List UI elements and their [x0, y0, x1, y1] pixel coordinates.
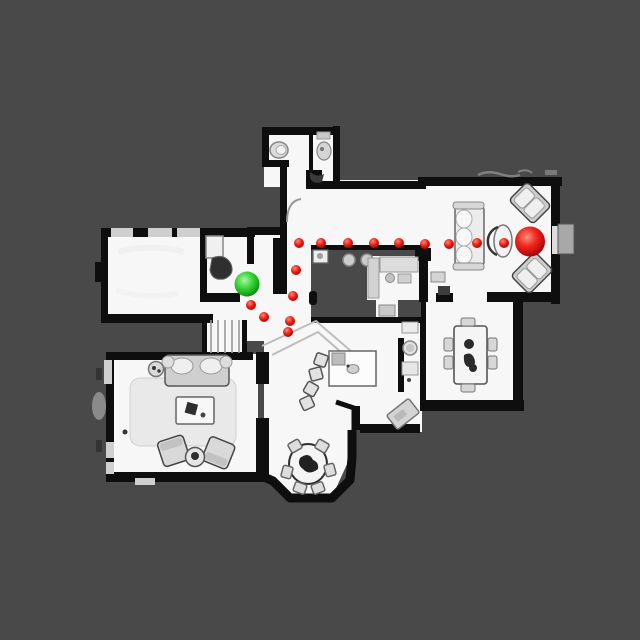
wall-nook-bottom: [360, 424, 420, 433]
floorplan-canvas[interactable]: [0, 0, 640, 640]
path-waypoint: [499, 238, 509, 248]
family-side-table: [186, 448, 205, 467]
exterior-bump: [96, 368, 102, 380]
path-waypoint: [246, 300, 256, 310]
path-waypoint: [343, 238, 353, 248]
wall-closet-bottom: [200, 293, 240, 302]
door-bump-living-right: [558, 224, 574, 254]
wall-leftroom-left: [101, 228, 108, 322]
wall-foyer-divider: [309, 131, 313, 171]
wall-dining-right: [513, 296, 523, 406]
path-waypoint: [288, 291, 298, 301]
path-waypoint: [444, 239, 454, 249]
wall-nook-dining-div: [420, 318, 426, 406]
path-waypoint: [283, 327, 293, 337]
hall-chair-dark: [438, 286, 450, 295]
door-gap-living-right: [552, 226, 558, 254]
wall-island-right: [421, 245, 426, 323]
wall-corridor-top: [247, 227, 281, 235]
wall-outlet: [123, 430, 128, 435]
living-sofa: [453, 202, 484, 270]
wall-living-top: [418, 177, 562, 186]
exterior-blob: [92, 392, 106, 420]
path-waypoint: [472, 238, 482, 248]
wall-leftroom-bump: [95, 262, 102, 282]
wall-foyer-right: [333, 126, 340, 186]
coffee-table: [176, 397, 214, 424]
start-marker: [235, 272, 260, 297]
path-waypoint: [259, 312, 269, 322]
path-waypoint: [369, 238, 379, 248]
window: [177, 228, 200, 237]
wall-dining-bottom: [420, 400, 524, 411]
wall-stairs-right-rail: [242, 320, 247, 354]
scene-viewport[interactable]: [0, 0, 640, 640]
wall-island-top: [311, 245, 425, 250]
window: [106, 442, 114, 458]
family-sofa: [162, 355, 232, 386]
wall-hall-top: [306, 181, 426, 189]
path-waypoint: [316, 238, 326, 248]
wall-stairs-left-rail: [202, 320, 207, 354]
window: [111, 228, 133, 237]
foyer-sink: [270, 142, 288, 158]
path-waypoint: [394, 238, 404, 248]
wall-family-right-upper: [256, 352, 269, 384]
window: [104, 360, 112, 384]
wall-island-bump: [309, 291, 317, 305]
wall-leftroom-bottom: [101, 314, 213, 323]
window: [148, 228, 172, 237]
path-waypoint: [285, 316, 295, 326]
window: [106, 462, 114, 474]
wall-corridor-kitchen-div: [273, 238, 287, 294]
office-desk: [329, 351, 376, 386]
goal-marker: [515, 227, 545, 257]
path-waypoint: [291, 265, 301, 275]
path-waypoint: [294, 238, 304, 248]
hall-chair: [431, 272, 445, 282]
wall-hall-left: [280, 163, 287, 238]
exterior-bump: [96, 440, 102, 452]
plant-table: [149, 362, 164, 377]
window: [135, 478, 155, 485]
path-waypoint: [420, 239, 430, 249]
wall-family-bottom: [106, 472, 268, 482]
